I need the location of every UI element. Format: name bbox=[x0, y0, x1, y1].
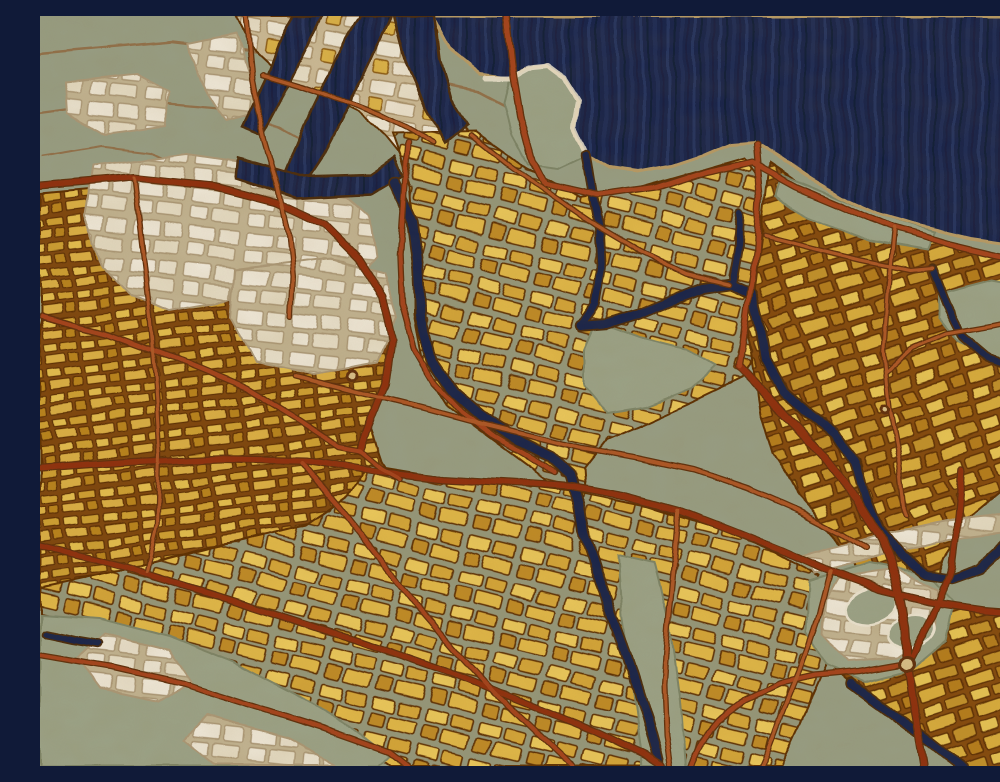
map-artwork bbox=[40, 16, 1000, 766]
map-canvas bbox=[40, 16, 1000, 766]
canvas-grain-overlay bbox=[40, 16, 1000, 766]
